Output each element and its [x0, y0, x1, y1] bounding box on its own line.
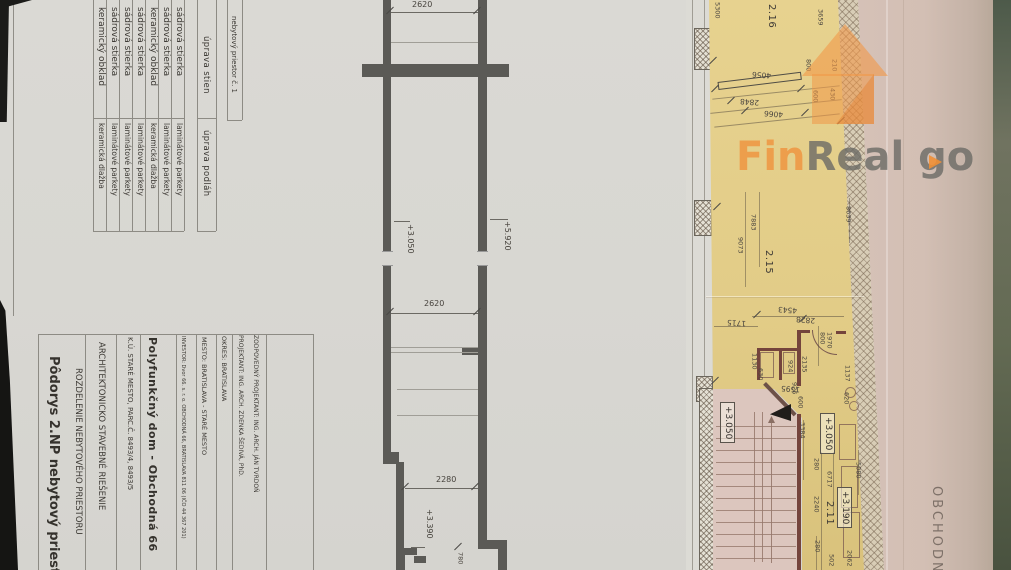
door-opening: [382, 251, 393, 266]
investor: INVESTOR: Dvor 66. s. r. o. OBCHODNÁ 66,…: [180, 336, 186, 539]
interior-wall: [779, 350, 782, 380]
masonry-pier: [694, 200, 712, 236]
drawing-title: Pôdorys 2.NP nebytový priestor: [46, 356, 61, 570]
dim-label: 600: [797, 396, 804, 408]
door-opening: [477, 251, 488, 266]
brand-real: Real: [806, 134, 905, 180]
wall-finish-cell: sádrová stierka: [135, 7, 145, 76]
dim-label: 1970: [826, 332, 833, 349]
walls-column-header: úprava stien: [201, 36, 211, 94]
photo-edge-top: [0, 0, 32, 7]
dim-label: 8639: [845, 206, 852, 223]
drawing-section: ROZDELENIE NEBYTOVÉHO PRIESTORU: [73, 368, 83, 535]
floor-finish-cell: laminátové parkety: [175, 123, 184, 196]
dim-label: 2848: [740, 97, 760, 106]
dim-label: 2620: [424, 300, 444, 308]
table-header: nebytový priestor č. 1: [230, 16, 238, 93]
dim-label: 3384: [799, 422, 806, 439]
floor-finish-cell: laminátové parkety: [110, 123, 119, 196]
city: MESTO: BRATISLAVA - STARÉ MESTO: [200, 337, 208, 455]
stair-side-wall: [699, 388, 714, 570]
level-mark: +3.050: [720, 402, 735, 443]
dim-label: 9073: [737, 237, 744, 254]
floors-column-header: úprava podláh: [201, 130, 211, 197]
brand-fin: Fin: [736, 134, 806, 180]
district: OKRES: BRATISLAVA: [220, 336, 228, 401]
dim-label: 924: [787, 360, 794, 372]
floor-plan-photo: nebytový priestor č. 1 úprava stien úpra…: [0, 0, 1011, 570]
dim-label: 926: [791, 382, 798, 394]
dim-label: 2062: [846, 550, 853, 567]
stair-direction-line: [771, 418, 772, 563]
photo-edge-top-left: [0, 0, 9, 122]
wall-stub: [462, 347, 479, 355]
wall-finish-cell: sádrová stierka: [174, 7, 184, 76]
floor-finish-cell: keramická dlažba: [149, 123, 158, 189]
dim-label: 2240: [813, 496, 820, 513]
brand-go: go: [904, 134, 974, 180]
dim-label: 4056: [752, 70, 772, 79]
street-crease: [886, 0, 888, 570]
room-number: 2.11: [824, 501, 834, 525]
dim-label: +5.920: [503, 221, 511, 251]
wall-finish-cell: sádrová stierka: [109, 7, 119, 76]
dim-label: 4066: [764, 109, 784, 118]
dim-label: 6717: [826, 471, 833, 488]
room-number: 2.16: [766, 4, 776, 28]
dim-label: 3659: [817, 9, 824, 26]
dim-label: 502: [828, 554, 835, 566]
dim-label: 2280: [436, 476, 456, 484]
dim-label: 5080: [855, 462, 862, 479]
interior-wall: [798, 330, 810, 333]
interior-wall: [836, 331, 846, 334]
dim-label: +3.050: [406, 224, 414, 254]
sheet-frame-line: [13, 0, 14, 316]
dim-label: 2135: [801, 356, 808, 373]
dim-label: 5300: [714, 2, 721, 19]
cadastre: K.Ú. STARÉ MESTO, PARC.Č. 8493/4, 8493/5: [126, 337, 134, 490]
photo-edge-right: [993, 0, 1011, 570]
dim-label: 2620: [412, 1, 432, 9]
dim-label: +3.390: [425, 509, 433, 539]
dim-label: 1137: [844, 365, 851, 382]
dim-label: 4543: [778, 305, 798, 314]
wall-finish-cell: keramický obklad: [96, 7, 106, 86]
dim-label: 280: [813, 458, 820, 470]
dim-label: 2828: [796, 315, 816, 324]
sink-fixture: [849, 401, 859, 411]
floor-finish-cell: laminátové parkety: [136, 123, 145, 196]
discipline: ARCHITEKTONICKO STAVEBNÉ RIEŠENIE: [96, 342, 106, 510]
dim-label: 620: [843, 392, 850, 404]
street-crease-2: [903, 0, 904, 570]
dim-label: 780: [457, 552, 464, 564]
floor-finish-cell: laminátové parkety: [162, 123, 171, 196]
wall-finish-cell: keramický obklad: [148, 7, 158, 86]
room-number: 2.15: [763, 250, 773, 274]
level-mark: +3.190: [837, 487, 852, 528]
designer: PROJEKTANT: ING. ARCH. ZDENKA ŠEDIVÁ, Ph…: [237, 335, 244, 477]
cabinet: [839, 424, 856, 460]
wall-finish-cell: sádrová stierka: [122, 7, 132, 76]
level-mark: +3.050: [820, 413, 835, 454]
floor-finish-cell: keramická dlažba: [97, 123, 106, 189]
photo-edge-bottom-left: [0, 300, 18, 570]
dim-label: 1715: [727, 318, 747, 327]
dim-label: 280: [814, 540, 821, 552]
top-wall: [362, 64, 509, 77]
wall-finish-cell: sádrová stierka: [161, 7, 171, 76]
project-title: Polyfunkčný dom - Obchodná 66: [146, 337, 159, 552]
dim-label: 630: [757, 368, 764, 380]
dim-label: 7883: [750, 214, 757, 231]
street-name: OBCHODNÁ: [930, 486, 943, 570]
chief-designer: ZODPOVEDNÝ PROJEKTANT: ING. ARCH. JÁN TV…: [252, 335, 259, 493]
watermark-text: FinReal go: [736, 134, 974, 180]
floor-finish-cell: laminátové parkety: [123, 123, 132, 196]
